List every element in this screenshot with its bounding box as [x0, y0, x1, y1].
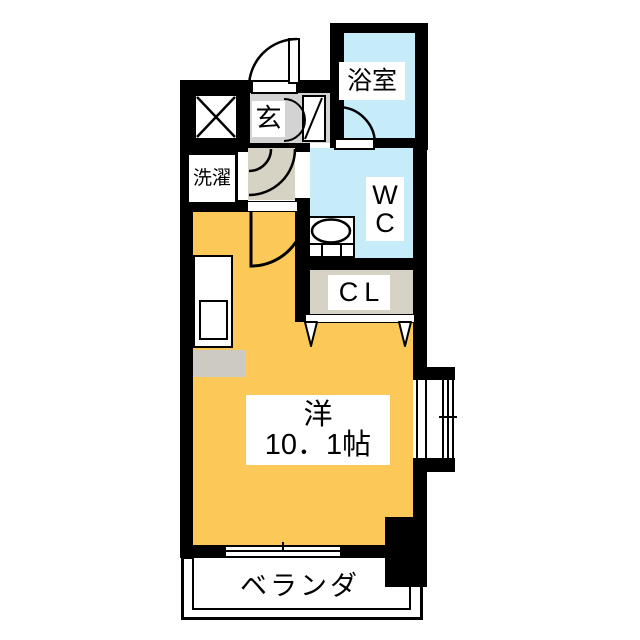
bathroom-door-sill	[334, 138, 375, 150]
pipe-space-icon	[193, 93, 239, 141]
closet-label: CL	[328, 275, 390, 310]
shoe-cabinet-icon	[302, 95, 326, 142]
wall	[413, 140, 427, 367]
wall	[295, 258, 427, 270]
corridor	[248, 148, 295, 200]
veranda-label: ベランダ	[225, 569, 375, 603]
toilet-label: W C	[366, 177, 404, 241]
bathroom-label: 浴室	[339, 62, 405, 100]
floor-plan: 浴室 玄 洗濯 W C CL 洋 10．1帖 ベランダ	[0, 0, 640, 640]
bay-window	[416, 378, 454, 460]
toilet-label-line: C	[375, 209, 395, 237]
sliding-window	[225, 546, 341, 557]
kitchen-sink	[199, 300, 228, 340]
wall	[385, 517, 427, 587]
wall	[413, 472, 427, 517]
wall	[413, 458, 455, 472]
toilet-label-line: W	[372, 181, 397, 209]
entrance-door-leaf	[288, 38, 300, 84]
main-room-label: 洋 10．1帖	[246, 395, 390, 465]
entrance-label: 玄	[252, 101, 285, 137]
laundry-area: 洗濯	[186, 152, 238, 205]
refrigerator-space	[193, 350, 245, 377]
toilet-door-opening	[295, 152, 310, 198]
closet-door-track	[305, 314, 415, 323]
main-room-door-sill	[248, 201, 297, 212]
main-room-type: 洋	[303, 400, 332, 430]
main-room-size: 10．1帖	[265, 430, 371, 460]
